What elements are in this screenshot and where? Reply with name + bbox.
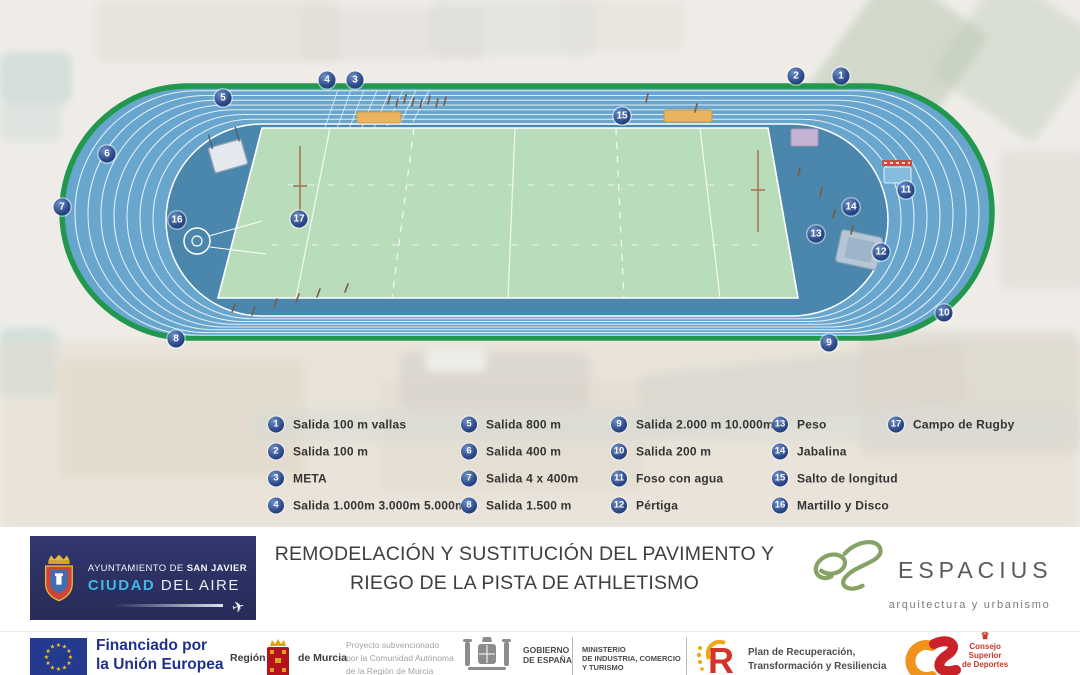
san-javier-logo: AYUNTAMIENTO DE SAN JAVIER CIUDAD DEL AI… <box>30 536 256 620</box>
legend-number-badge: 6 <box>461 443 477 459</box>
legend-item-16: 16Martillo y Disco <box>772 497 889 514</box>
murcia-label-left: Región <box>230 652 266 664</box>
shot-put-pad <box>791 129 818 146</box>
legend-number-badge: 11 <box>611 470 627 486</box>
ciudad-del-aire-line: CIUDAD DEL AIRE <box>88 577 247 594</box>
project-title-line1: REMODELACIÓN Y SUSTITUCIÓN DEL PAVIMENTO… <box>262 540 787 569</box>
legend-item-1: 1Salida 100 m vallas <box>268 416 406 433</box>
legend-label: Foso con agua <box>636 471 723 485</box>
legend-label: META <box>293 471 327 485</box>
legend-label: Salida 200 m <box>636 444 711 458</box>
footer-band: AYUNTAMIENTO DE SAN JAVIER CIUDAD DEL AI… <box>0 527 1080 631</box>
legend-item-17: 17Campo de Rugby <box>888 416 1014 433</box>
legend-number-badge: 3 <box>268 470 284 486</box>
espacius-tagline: arquitectura y urbanismo <box>867 599 1072 611</box>
legend-label: Jabalina <box>797 444 847 458</box>
legend-number-badge: 4 <box>268 497 284 513</box>
legend-number-badge: 9 <box>611 416 627 432</box>
legend-number-badge: 5 <box>461 416 477 432</box>
legend-label: Campo de Rugby <box>913 417 1014 431</box>
legend-item-8: 8Salida 1.500 m <box>461 497 572 514</box>
legend-item-4: 4Salida 1.000m 3.000m 5.000m <box>268 497 466 514</box>
track-marker-17: 17 <box>291 211 308 228</box>
svg-text:★: ★ <box>56 666 61 673</box>
long-jump-pit-left <box>357 112 401 123</box>
legend-item-5: 5Salida 800 m <box>461 416 561 433</box>
track-marker-13: 13 <box>808 226 825 243</box>
espacius-logo: ESPACIUS arquitectura y urbanismo <box>795 533 1070 627</box>
legend-label: Martillo y Disco <box>797 498 889 512</box>
track-marker-7: 7 <box>54 199 71 216</box>
contrail-line <box>113 604 223 607</box>
eu-funding-line1: Financiado por <box>96 637 207 655</box>
svg-text:★: ★ <box>62 664 67 671</box>
csd-line1: Consejo <box>962 642 1008 651</box>
legend-number-badge: 10 <box>611 443 627 459</box>
prtr-line1: Plan de Recuperación, <box>748 646 855 660</box>
murcia-note-line1: Proyecto subvencionado <box>346 639 439 652</box>
legend-label: Salida 100 m <box>293 444 368 458</box>
prtr-line2: Transformación y Resiliencia <box>748 660 886 674</box>
divider <box>572 637 573 675</box>
legend-label: Salida 4 x 400m <box>486 471 578 485</box>
svg-text:R: R <box>708 640 734 675</box>
legend-item-2: 2Salida 100 m <box>268 443 368 460</box>
ministerio-line3: Y TURISMO <box>582 663 624 672</box>
svg-text:★: ★ <box>50 644 55 651</box>
legend-item-3: 3META <box>268 470 327 487</box>
legend-item-11: 11Foso con agua <box>611 470 723 487</box>
csd-line3: de Deportes <box>962 660 1008 669</box>
legend-label: Salida 2.000 m 10.000m <box>636 417 774 431</box>
csd-text: ♛ Consejo Superior de Deportes <box>962 632 1008 669</box>
track-marker-10: 10 <box>936 305 953 322</box>
svg-text:★: ★ <box>45 660 50 667</box>
track-marker-3: 3 <box>347 72 364 89</box>
legend-label: Pértiga <box>636 498 678 512</box>
svg-text:★: ★ <box>44 654 49 661</box>
legend-number-badge: 13 <box>772 416 788 432</box>
murcia-note-line2: por la Comunidad Autónoma <box>346 652 454 665</box>
san-javier-coat-of-arms-icon <box>39 544 79 612</box>
legend-number-badge: 7 <box>461 470 477 486</box>
murcia-coat-of-arms-icon <box>264 638 292 675</box>
track-marker-14: 14 <box>843 199 860 216</box>
legend-item-14: 14Jabalina <box>772 443 847 460</box>
legend-number-badge: 2 <box>268 443 284 459</box>
legend-label: Salida 100 m vallas <box>293 417 406 431</box>
eu-flag-icon: ★★★ ★★★ ★★★ ★★★ <box>30 638 87 675</box>
legend-item-12: 12Pértiga <box>611 497 678 514</box>
legend-number-badge: 12 <box>611 497 627 513</box>
track-marker-6: 6 <box>99 146 116 163</box>
san-javier-text: AYUNTAMIENTO DE SAN JAVIER CIUDAD DEL AI… <box>88 563 247 594</box>
csd-crown-icon: ♛ <box>962 632 1008 642</box>
legend-label: Salida 1.500 m <box>486 498 572 512</box>
prtr-r-logo-icon: R <box>695 637 745 675</box>
gobierno-line1: GOBIERNO <box>523 645 569 655</box>
plane-icon: ✈ <box>230 596 247 617</box>
legend-label: Salida 400 m <box>486 444 561 458</box>
murcia-label-right: de Murcia <box>298 652 347 664</box>
spain-coat-of-arms-icon <box>456 635 518 675</box>
csd-line2: Superior <box>962 651 1008 660</box>
project-title-line2: RIEGO DE LA PISTA DE ATHLETISMO <box>262 569 787 598</box>
eu-funding-line2: la Unión Europea <box>96 656 223 674</box>
project-poster: 1234567891011121314151617 1Salida 100 m … <box>0 0 1080 675</box>
funding-band: ★★★ ★★★ ★★★ ★★★ Financiado por la Unión … <box>0 631 1080 675</box>
track-marker-12: 12 <box>873 244 890 261</box>
track-marker-1: 1 <box>833 68 850 85</box>
track-marker-9: 9 <box>821 335 838 352</box>
water-jump <box>882 160 912 183</box>
csd-logo-icon <box>888 635 962 675</box>
legend-label: Salto de longitud <box>797 471 898 485</box>
legend-label: Peso <box>797 417 826 431</box>
legend-number-badge: 16 <box>772 497 788 513</box>
legend-number-badge: 15 <box>772 470 788 486</box>
track-marker-15: 15 <box>614 108 631 125</box>
legend-item-10: 10Salida 200 m <box>611 443 711 460</box>
espacius-swirl-icon <box>795 533 900 599</box>
legend-number-badge: 8 <box>461 497 477 513</box>
svg-text:★: ★ <box>56 642 61 649</box>
legend-number-badge: 14 <box>772 443 788 459</box>
long-jump-pit-right <box>664 110 712 122</box>
track-marker-2: 2 <box>788 68 805 85</box>
divider <box>686 637 687 675</box>
legend-item-6: 6Salida 400 m <box>461 443 561 460</box>
track-marker-5: 5 <box>215 90 232 107</box>
legend-label: Salida 1.000m 3.000m 5.000m <box>293 498 466 512</box>
track-marker-4: 4 <box>319 72 336 89</box>
track-marker-8: 8 <box>168 331 185 348</box>
legend-item-13: 13Peso <box>772 416 826 433</box>
legend-item-7: 7Salida 4 x 400m <box>461 470 578 487</box>
legend-item-9: 9Salida 2.000 m 10.000m <box>611 416 774 433</box>
ministerio-line2: DE INDUSTRIA, COMERCIO <box>582 654 681 663</box>
legend-number-badge: 1 <box>268 416 284 432</box>
legend-number-badge: 17 <box>888 416 904 432</box>
track-marker-11: 11 <box>898 182 915 199</box>
ministerio-line1: MINISTERIO <box>582 645 626 654</box>
gobierno-line2: DE ESPAÑA <box>523 655 572 665</box>
murcia-note-line3: de la Región de Murcia <box>346 665 433 675</box>
project-title: REMODELACIÓN Y SUSTITUCIÓN DEL PAVIMENTO… <box>262 540 787 598</box>
legend-item-15: 15Salto de longitud <box>772 470 898 487</box>
legend-label: Salida 800 m <box>486 417 561 431</box>
ayuntamiento-line: AYUNTAMIENTO DE SAN JAVIER <box>88 563 247 574</box>
track-marker-16: 16 <box>169 212 186 229</box>
espacius-name: ESPACIUS <box>898 557 1053 584</box>
